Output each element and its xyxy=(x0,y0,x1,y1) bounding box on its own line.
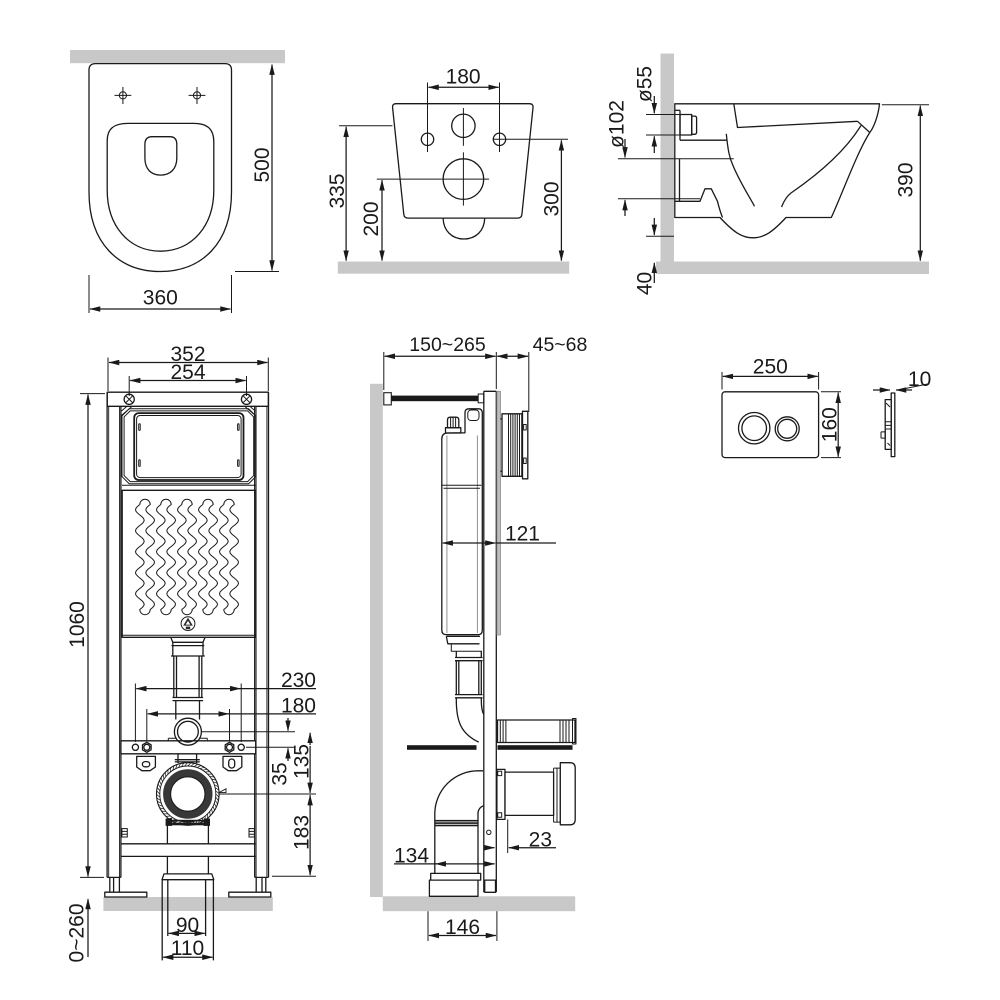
svg-text:360: 360 xyxy=(143,287,178,310)
svg-text:110: 110 xyxy=(171,937,204,960)
svg-text:1060: 1060 xyxy=(66,601,89,648)
svg-text:180: 180 xyxy=(446,66,481,89)
svg-text:0~260: 0~260 xyxy=(66,904,89,963)
svg-text:23: 23 xyxy=(529,829,552,852)
svg-text:135: 135 xyxy=(291,744,314,779)
svg-text:35: 35 xyxy=(269,762,292,785)
svg-text:45~68: 45~68 xyxy=(533,334,588,356)
svg-text:10: 10 xyxy=(908,368,931,391)
svg-text:390: 390 xyxy=(895,162,918,197)
svg-text:230: 230 xyxy=(281,669,316,692)
svg-text:180: 180 xyxy=(281,694,316,717)
svg-text:146: 146 xyxy=(445,916,480,939)
svg-text:134: 134 xyxy=(394,844,429,867)
svg-text:150~265: 150~265 xyxy=(409,334,486,356)
svg-text:200: 200 xyxy=(360,201,383,236)
svg-text:40: 40 xyxy=(633,272,656,295)
svg-text:335: 335 xyxy=(326,173,349,208)
svg-text:300: 300 xyxy=(541,181,564,216)
svg-text:250: 250 xyxy=(753,356,788,379)
svg-text:160: 160 xyxy=(819,407,842,442)
svg-text:254: 254 xyxy=(170,361,205,384)
svg-text:500: 500 xyxy=(251,147,274,182)
svg-text:121: 121 xyxy=(505,523,540,546)
svg-text:90: 90 xyxy=(176,914,199,937)
svg-text:ø55: ø55 xyxy=(633,66,656,102)
svg-text:183: 183 xyxy=(291,815,314,850)
svg-text:ø102: ø102 xyxy=(605,100,628,148)
